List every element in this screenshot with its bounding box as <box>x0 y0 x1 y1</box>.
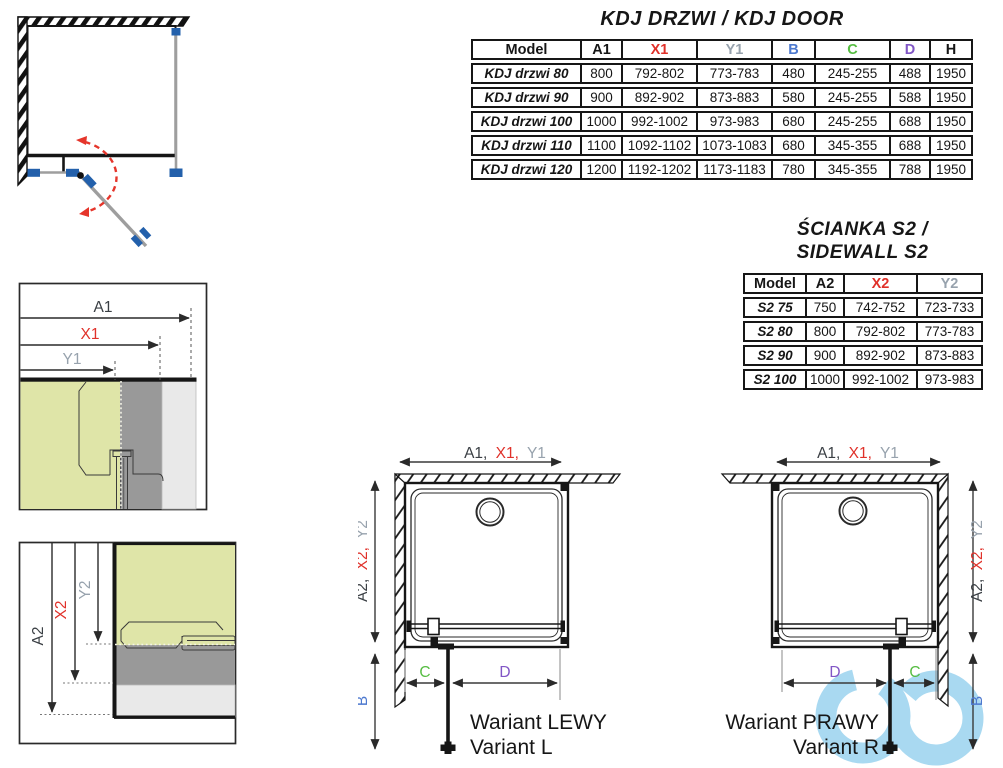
column-header: Model <box>743 273 807 294</box>
variant-right-title: Wariant PRAWY <box>725 711 879 734</box>
column-header: X2 <box>845 273 918 294</box>
table-cell: 488 <box>891 63 931 84</box>
table-cell: 245-255 <box>816 87 891 108</box>
table-cell: 345-355 <box>816 135 891 156</box>
column-header: A2 <box>807 273 845 294</box>
variant-right-diagram: A1, X1, Y1 <box>700 441 1003 768</box>
s2-table-title-line2: SIDEWALL S2 <box>741 241 984 264</box>
table-cell-model: S2 80 <box>743 321 807 342</box>
table-row: KDJ drzwi 110 1100 1092-1102 1073-1083 6… <box>471 135 973 156</box>
column-header: D <box>891 39 931 60</box>
table-row: S2 75 750 742-752 723-733 <box>743 297 983 318</box>
table-cell: 245-255 <box>816 111 891 132</box>
table-row: KDJ drzwi 120 1200 1192-1202 1173-1183 7… <box>471 159 973 180</box>
table-cell-model: KDJ drzwi 100 <box>471 111 582 132</box>
kdj-dimensions-table: Model A1 X1 Y1 B C D H KDJ drzwi 80 800 … <box>471 36 973 183</box>
table-cell: 800 <box>807 321 845 342</box>
section-fills <box>113 543 236 719</box>
table-cell: 780 <box>773 159 816 180</box>
table-cell-model: KDJ drzwi 110 <box>471 135 582 156</box>
table-row: KDJ drzwi 90 900 892-902 873-883 580 245… <box>471 87 973 108</box>
kdj-table-title: KDJ DRZWI / KDJ DOOR <box>471 8 973 31</box>
table-cell-model: KDJ drzwi 80 <box>471 63 582 84</box>
table-cell: 1100 <box>582 135 623 156</box>
column-header: Model <box>471 39 582 60</box>
table-cell: 1950 <box>931 87 973 108</box>
door-panel-open <box>28 169 152 247</box>
s2-table-block: ŚCIANKA S2 / SIDEWALL S2 Model A2 X2 Y2 … <box>741 218 984 393</box>
table-cell: 773-783 <box>918 321 983 342</box>
dim-label-c: C <box>909 664 920 681</box>
dim-label-x1: X1, <box>849 445 872 462</box>
table-cell: 1950 <box>931 63 973 84</box>
wall-hatch <box>18 17 189 185</box>
shower-tray <box>772 483 938 647</box>
column-header: H <box>931 39 973 60</box>
column-header: B <box>773 39 816 60</box>
table-cell: 680 <box>773 111 816 132</box>
table-cell: 1950 <box>931 111 973 132</box>
shower-enclosure-outline <box>27 26 177 173</box>
table-cell: 900 <box>807 345 845 366</box>
column-header: Y2 <box>918 273 983 294</box>
dim-label-y2: Y2 <box>358 520 371 539</box>
detail-section-a1x1y1: A1 X1 Y1 <box>14 280 214 514</box>
combo-dim-label-top: A1, X1, Y1 <box>464 445 546 462</box>
table-row: KDJ drzwi 100 1000 992-1002 973-983 680 … <box>471 111 973 132</box>
table-cell: 992-1002 <box>623 111 698 132</box>
dim-label-c: C <box>419 664 430 681</box>
table-cell: 1000 <box>807 369 845 390</box>
table-cell-model: S2 75 <box>743 297 807 318</box>
dim-label-a1: A1 <box>94 299 113 316</box>
table-header-row: Model A2 X2 Y2 <box>743 273 983 294</box>
table-row: S2 100 1000 992-1002 973-983 <box>743 369 983 390</box>
overview-top-view-diagram <box>8 2 208 254</box>
dim-label-a1: A1, <box>817 445 840 462</box>
table-cell: 345-355 <box>816 159 891 180</box>
table-cell: 245-255 <box>816 63 891 84</box>
column-header: A1 <box>582 39 623 60</box>
dimension-lines <box>52 543 98 712</box>
table-row: S2 80 800 792-802 773-783 <box>743 321 983 342</box>
table-cell: 792-802 <box>623 63 698 84</box>
table-cell: 1950 <box>931 135 973 156</box>
dim-label-a2: A2 <box>30 627 47 646</box>
detail-section-a2x2y2: A2 X2 Y2 <box>14 538 244 750</box>
table-cell: 892-902 <box>845 345 918 366</box>
table-cell: 1092-1102 <box>623 135 698 156</box>
table-cell: 800 <box>582 63 623 84</box>
table-cell: 688 <box>891 135 931 156</box>
table-cell: 742-752 <box>845 297 918 318</box>
table-cell: 588 <box>891 87 931 108</box>
dim-label-d: D <box>829 664 840 681</box>
dim-label-y1: Y1 <box>63 351 82 368</box>
table-cell: 873-883 <box>918 345 983 366</box>
section-fills <box>21 378 197 510</box>
combo-dim-label-left: A2, X2, Y2 <box>358 520 371 602</box>
dimension-guides <box>115 308 191 380</box>
table-cell-model: S2 90 <box>743 345 807 366</box>
table-cell: 1000 <box>582 111 623 132</box>
dimension-lines <box>21 318 190 370</box>
table-cell: 680 <box>773 135 816 156</box>
table-cell: 750 <box>807 297 845 318</box>
dim-label-x2: X2 <box>53 601 70 620</box>
table-cell: 892-902 <box>623 87 698 108</box>
table-cell: 580 <box>773 87 816 108</box>
table-cell: 788 <box>891 159 931 180</box>
s2-dimensions-table: Model A2 X2 Y2 S2 75 750 742-752 723-733… <box>743 270 983 393</box>
table-cell-model: KDJ drzwi 120 <box>471 159 582 180</box>
combo-dim-label-right: A2, X2, Y2 <box>969 520 986 602</box>
column-header: X1 <box>623 39 698 60</box>
table-row: KDJ drzwi 80 800 792-802 773-783 480 245… <box>471 63 973 84</box>
table-cell: 973-983 <box>698 111 773 132</box>
dim-label-a2: A2, <box>358 579 371 602</box>
dim-label-y1: Y1 <box>527 445 546 462</box>
table-cell: 973-983 <box>918 369 983 390</box>
variant-right-subtitle: Variant R <box>793 736 879 759</box>
table-row: S2 90 900 892-902 873-883 <box>743 345 983 366</box>
dim-label-a1: A1, <box>464 445 487 462</box>
kdj-table-block: KDJ DRZWI / KDJ DOOR Model A1 X1 Y1 B C … <box>471 8 973 183</box>
dimension-guides <box>40 644 113 715</box>
table-cell: 1192-1202 <box>623 159 698 180</box>
table-cell: 1173-1183 <box>698 159 773 180</box>
table-cell: 900 <box>582 87 623 108</box>
dim-label-d: D <box>499 664 510 681</box>
dim-label-x2: X2, <box>358 547 371 570</box>
table-cell: 1950 <box>931 159 973 180</box>
dim-label-x1: X1, <box>496 445 519 462</box>
dim-label-y2: Y2 <box>77 581 94 600</box>
column-header: C <box>816 39 891 60</box>
table-header-row: Model A1 X1 Y1 B C D H <box>471 39 973 60</box>
combo-dim-label-top: A1, X1, Y1 <box>817 445 899 462</box>
dim-label-b: B <box>969 696 986 706</box>
table-cell: 480 <box>773 63 816 84</box>
variant-left-subtitle: Variant L <box>470 736 553 759</box>
table-cell: 723-733 <box>918 297 983 318</box>
table-cell: 992-1002 <box>845 369 918 390</box>
dim-label-x1: X1 <box>81 326 100 343</box>
variant-left-diagram: A1, X1, Y1 <box>358 441 630 767</box>
table-cell: 792-802 <box>845 321 918 342</box>
dim-label-y1: Y1 <box>880 445 899 462</box>
table-cell: 773-783 <box>698 63 773 84</box>
s2-table-title-line1: ŚCIANKA S2 / <box>741 218 984 241</box>
column-header: Y1 <box>698 39 773 60</box>
dim-label-x2: X2, <box>969 547 986 570</box>
table-cell: 1200 <box>582 159 623 180</box>
dim-label-a2: A2, <box>969 579 986 602</box>
table-cell-model: KDJ drzwi 90 <box>471 87 582 108</box>
table-cell: 873-883 <box>698 87 773 108</box>
table-cell: 688 <box>891 111 931 132</box>
dim-label-b: B <box>358 696 371 706</box>
spec-sheet-page: KDJ DRZWI / KDJ DOOR Model A1 X1 Y1 B C … <box>0 0 1003 768</box>
variant-left-title: Wariant LEWY <box>470 711 607 734</box>
table-cell: 1073-1083 <box>698 135 773 156</box>
table-cell-model: S2 100 <box>743 369 807 390</box>
dim-label-y2: Y2 <box>969 520 986 539</box>
door-closed <box>438 644 456 755</box>
